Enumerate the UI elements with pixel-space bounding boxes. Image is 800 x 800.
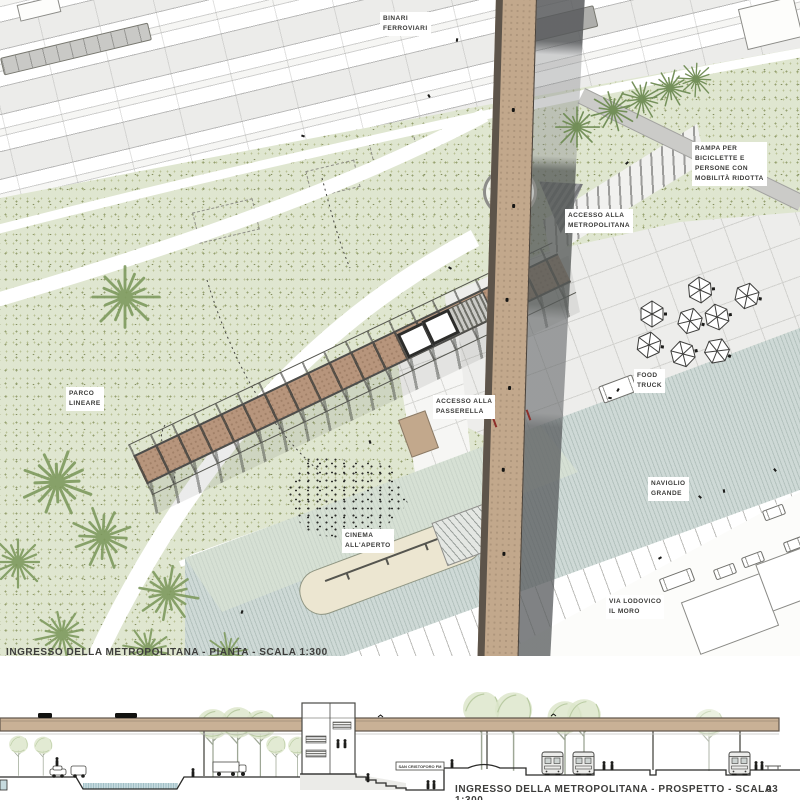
label-cinema-aperto: CINEMA ALL'APERTO [342, 529, 394, 553]
water-hatch [83, 783, 178, 789]
train-icon [573, 752, 594, 776]
underground-corridor [406, 778, 444, 790]
parked-cars [50, 766, 86, 778]
train-icon [729, 752, 750, 776]
label-binari-ferroviari: BINARI FERROVIARI [380, 12, 431, 36]
person-icon [433, 780, 436, 789]
truss-support [424, 543, 428, 550]
truss-support [346, 573, 350, 580]
label-parco-lineare: PARCO LINEARE [66, 387, 104, 411]
person-icon [761, 761, 764, 770]
tree-icon [266, 736, 286, 777]
label-rampa: RAMPA PER BICICLETTE E PERSONE CON MOBIL… [692, 142, 767, 186]
label-via-lodovico: VIA LODOVICO IL MORO [606, 595, 664, 619]
truck [213, 762, 246, 776]
person-icon [337, 739, 340, 748]
label-accesso-metropolitana: ACCESSO ALLA METROPOLITANA [565, 209, 633, 233]
plan-title: INGRESSO DELLA METROPOLITANA - PIANTA - … [6, 647, 328, 658]
tree-icon [34, 737, 52, 776]
walkway-deck [0, 718, 779, 731]
person-icon [344, 739, 347, 748]
sheet-gap [0, 656, 800, 692]
tree-icon [9, 736, 28, 776]
person-icon [755, 761, 758, 770]
person-icon [451, 759, 454, 768]
person-icon [505, 298, 508, 302]
person-icon [427, 780, 430, 789]
deck-columns [204, 731, 740, 776]
person-icon [512, 108, 515, 112]
person-icon [502, 552, 505, 556]
label-food-truck: FOOD TRUCK [634, 369, 665, 393]
architectural-sheet: BINARI FERROVIARI RAMPA PER BICICLETTE E… [0, 0, 800, 800]
person-icon [192, 768, 195, 777]
person-icon [502, 468, 505, 472]
sheet-number: 03 [766, 784, 778, 795]
train-icon [542, 752, 563, 776]
label-naviglio-grande: NAVIGLIO GRANDE [648, 477, 689, 501]
person-icon [367, 773, 370, 782]
person-icon [512, 204, 515, 208]
station-sign-text: SAN CRISTOFORO FM [398, 764, 442, 769]
person-icon [508, 386, 511, 390]
person-icon [611, 761, 614, 770]
label-accesso-passerella: ACCESSO ALLA PASSERELLA [433, 395, 495, 419]
truss-support [385, 558, 389, 565]
water-edge [0, 780, 7, 790]
site-plan: BINARI FERROVIARI RAMPA PER BICICLETTE E… [0, 0, 800, 658]
elevation-title: INGRESSO DELLA METROPOLITANA - PROSPETTO… [455, 784, 800, 800]
person-icon [603, 761, 606, 770]
metro-entrance-tower [302, 703, 355, 774]
person-icon [56, 757, 59, 766]
